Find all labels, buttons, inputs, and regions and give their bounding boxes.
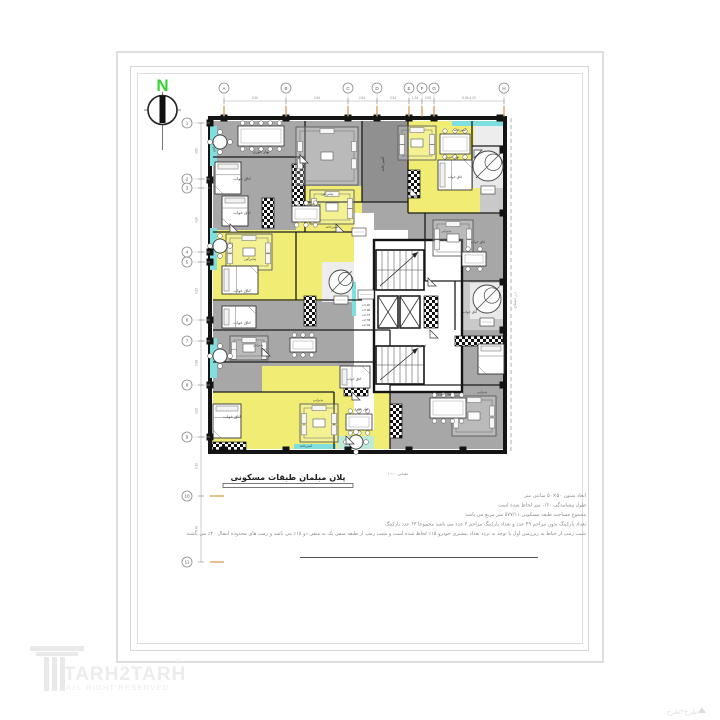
coffee-table <box>313 419 325 427</box>
sofa <box>467 229 472 239</box>
dim-value: 4.10 <box>195 463 199 469</box>
column-logo-icon <box>52 657 57 691</box>
column-marker <box>345 447 352 454</box>
chair <box>240 147 244 151</box>
chair <box>478 247 482 251</box>
sofa <box>332 425 337 435</box>
room-label: نهار خوری <box>437 392 451 396</box>
chair <box>348 409 352 413</box>
room-label: اتاق خواب <box>233 320 250 325</box>
checker-strip <box>344 388 368 396</box>
sofa <box>400 145 405 155</box>
watermark-corner: طرح۲طرح <box>666 707 706 716</box>
chair <box>218 234 223 239</box>
dim-value: 5.06-4.20 <box>462 96 476 100</box>
title-block: پلان مبلمان طبقات مسکونی مقیاس ۱:۱۰۰ <box>223 472 408 488</box>
column-marker <box>500 327 507 334</box>
chair <box>309 353 313 357</box>
chair <box>365 431 369 435</box>
dining-table <box>292 206 320 222</box>
pillow <box>440 163 445 187</box>
chair <box>228 354 233 359</box>
plan-layer: تراسنهار خوریپذیراییآشپزخانهآشپزخانهنهار… <box>207 115 518 455</box>
note-line: طول پیشامدگی ۰/۶۰ متر لحاظ شده است <box>498 502 586 509</box>
sofa <box>352 159 357 169</box>
sofa <box>348 199 353 209</box>
room-label: نهار خوری <box>307 202 321 206</box>
sofa <box>410 128 424 133</box>
dim-value: 2.84 <box>359 96 365 100</box>
chair <box>240 121 244 125</box>
dining-table <box>462 252 486 266</box>
grid-column-label: E <box>407 86 410 91</box>
chair <box>218 364 223 369</box>
sofa <box>298 142 303 152</box>
dim-value: 2.34 <box>390 96 396 100</box>
grid-column-label: B <box>284 86 287 91</box>
room-label: تراس <box>212 144 216 152</box>
pillow <box>224 269 229 291</box>
sofa <box>348 209 353 219</box>
grid-row-label: 11 <box>185 560 190 565</box>
chair <box>208 244 213 249</box>
checker-strip <box>304 296 316 326</box>
coffee-table <box>447 234 459 242</box>
room-label: آشپزخانه <box>414 344 428 348</box>
chair <box>348 431 352 435</box>
chair <box>208 140 213 145</box>
sofa <box>446 222 460 227</box>
sofa <box>266 243 271 253</box>
pillow <box>481 346 501 351</box>
note-line: ابعاد ستون ۵۰×۵۰ سانتی متر <box>523 493 586 499</box>
chair <box>292 353 296 357</box>
room-label: پذیرایی <box>244 256 256 261</box>
room-label: آشپزخانه <box>380 156 385 172</box>
room-label: +2.38 <box>362 318 371 322</box>
sofa <box>228 254 233 264</box>
north-label: N <box>156 76 168 95</box>
coffee-table <box>411 139 423 147</box>
dim-value: 1.26 <box>412 96 418 100</box>
room-label: اتاق خواب <box>347 377 362 381</box>
chair <box>301 333 305 337</box>
column-marker <box>500 279 507 286</box>
room-label: اتاق خواب <box>471 240 486 244</box>
sofa <box>352 142 357 152</box>
floor-plan-svg: تراسنهار خوریپذیراییآشپزخانهآشپزخانهنهار… <box>0 0 720 720</box>
column-marker <box>406 447 413 454</box>
dim-value: 5.30 <box>252 96 258 100</box>
chair <box>292 333 296 337</box>
room-label: اتاق خواب <box>448 175 463 179</box>
chair <box>218 150 223 155</box>
pillow <box>218 164 238 169</box>
room-label: پذیرایی <box>441 229 451 233</box>
chair <box>301 353 305 357</box>
column-logo-icon <box>44 657 49 691</box>
dim-value: 4.00 <box>195 408 199 414</box>
corner-watermark: طرح۲طرح <box>666 708 698 716</box>
dim-value: 3.90 <box>314 96 320 100</box>
room-label: اتاق خواب <box>223 414 240 419</box>
room-label: اتاق خواب <box>463 310 478 314</box>
column-marker <box>500 147 507 154</box>
chair <box>228 244 233 249</box>
chair <box>432 419 436 423</box>
chair <box>354 430 359 435</box>
column-marker <box>221 447 228 454</box>
sofa <box>430 135 435 145</box>
chair <box>277 147 281 151</box>
dim-value: 0.90 <box>425 96 431 100</box>
chair <box>268 121 272 125</box>
room-label: پذیرایی <box>253 343 263 347</box>
note-line: مجموع مساحت طبقه مسکونی ۵۷۷/۱۱ متر مربع … <box>465 512 586 518</box>
dim-value: 4.80 <box>195 148 199 154</box>
chair <box>304 223 308 227</box>
chair <box>463 155 467 159</box>
room-label: درز انقطاع <box>513 291 517 308</box>
room-label: اتاق خواب <box>233 288 250 293</box>
chair <box>259 121 263 125</box>
sofa <box>332 414 337 424</box>
sofa <box>490 418 495 428</box>
column-marker <box>207 177 214 184</box>
chair <box>466 267 470 271</box>
grid-column-label: F <box>421 86 424 91</box>
title-underline-box <box>223 484 353 488</box>
column-logo-icon <box>36 652 78 656</box>
registered-mark: ® <box>176 658 182 666</box>
chair <box>364 440 369 445</box>
grid-column-label: H <box>502 86 505 91</box>
chair <box>228 140 233 145</box>
pillow <box>224 309 229 325</box>
drawing-sheet: تراسنهار خوریپذیراییآشپزخانهآشپزخانهنهار… <box>0 0 720 720</box>
coffee-table <box>326 203 338 211</box>
chair <box>208 354 213 359</box>
chair <box>354 450 359 455</box>
column-marker <box>500 382 507 389</box>
sofa <box>266 254 271 264</box>
coffee-table <box>243 248 255 256</box>
watermark-bottom-left: TARH2TARH ® ALL RIGHT RESERVED <box>30 646 186 692</box>
checker-strip <box>212 442 246 450</box>
dim-value: 3.80 <box>195 360 199 366</box>
column-marker <box>500 210 507 217</box>
grid-row-label: 10 <box>184 494 190 499</box>
chair <box>478 267 482 271</box>
sofa <box>242 338 256 343</box>
room-label: پذیرایی <box>313 398 323 402</box>
sofa <box>435 240 440 250</box>
room-label: آشپزخانه <box>300 444 314 448</box>
corner-logo-icon <box>698 707 706 713</box>
chair <box>459 393 463 397</box>
room-label: آشپزخانه <box>326 225 340 229</box>
sofa <box>302 414 307 424</box>
chair <box>309 333 313 337</box>
room-label: پذیرایی <box>477 390 487 394</box>
chair <box>277 121 281 125</box>
chair <box>294 201 298 205</box>
room <box>452 121 503 126</box>
coffee-table <box>321 152 333 160</box>
room-label: +3.06 <box>362 308 371 312</box>
column-marker <box>283 447 290 454</box>
checker-strip <box>390 404 402 438</box>
chair <box>313 223 317 227</box>
sofa <box>430 145 435 155</box>
room-label: آشپزخانه <box>454 128 468 132</box>
round-table <box>213 349 227 363</box>
column-marker <box>497 115 504 122</box>
brand-tagline: ALL RIGHT RESERVED <box>66 683 169 692</box>
room-label: اتاق خواب <box>233 176 250 181</box>
dining-table <box>346 414 372 430</box>
room-label: +3.40 <box>362 303 371 307</box>
sofa <box>320 129 334 134</box>
coffee-table <box>468 412 480 420</box>
room <box>352 282 356 316</box>
checker-strip <box>424 296 438 328</box>
north-arrow: N <box>144 76 181 150</box>
sofa <box>232 349 237 359</box>
chair <box>441 419 445 423</box>
pillow <box>225 198 245 203</box>
note-line: تعداد پارکینگ بدون مزاحم ۴۹ عدد و تعداد … <box>385 521 587 528</box>
chair <box>218 344 223 349</box>
column-logo-icon <box>30 646 84 651</box>
brand-watermark: TARH2TARH <box>64 664 186 685</box>
notes-block: ابعاد ستون ۵۰×۵۰ سانتی متر طول پیشامدگی … <box>187 493 587 558</box>
room-label: پذیرایی <box>321 191 333 196</box>
pillow <box>216 406 238 411</box>
dim-value: 4.90 <box>195 217 199 223</box>
scale-note: مقیاس ۱:۱۰۰ <box>388 472 408 476</box>
room-label: +2.04 <box>362 323 371 327</box>
sofa <box>400 135 405 145</box>
sofa <box>490 406 495 416</box>
room-label: نهار خوری <box>445 155 459 159</box>
page: { "north": { "label": "N", "color": "#35… <box>0 0 720 720</box>
sofa <box>302 425 307 435</box>
room-label: +2.72 <box>362 313 371 317</box>
round-table <box>213 239 227 253</box>
grid-column-label: G <box>432 86 436 91</box>
chair <box>450 419 454 423</box>
room-label: اتاق خواب <box>233 210 250 215</box>
sofa <box>242 236 256 241</box>
grid-column-label: A <box>222 86 225 91</box>
chair <box>218 130 223 135</box>
dim-value: 4.95 <box>195 288 199 294</box>
chair <box>218 254 223 259</box>
sofa <box>467 398 481 403</box>
drawing-title: پلان مبلمان طبقات مسکونی <box>230 472 345 483</box>
chair <box>250 121 254 125</box>
sofa <box>312 406 326 411</box>
note-line: شیب رمپ از حیاط به زیرزمین اول با توجه ب… <box>187 531 587 537</box>
chair <box>443 129 447 133</box>
room-label: نهار خوری <box>253 149 270 154</box>
chair <box>466 247 470 251</box>
room-label: نهار خوری <box>354 407 368 411</box>
compass-needle <box>160 96 166 123</box>
dining-table <box>290 338 316 352</box>
chair <box>294 223 298 227</box>
checker-strip <box>262 198 274 228</box>
sofa <box>435 229 440 239</box>
column-marker <box>460 447 467 454</box>
chair <box>459 419 463 423</box>
